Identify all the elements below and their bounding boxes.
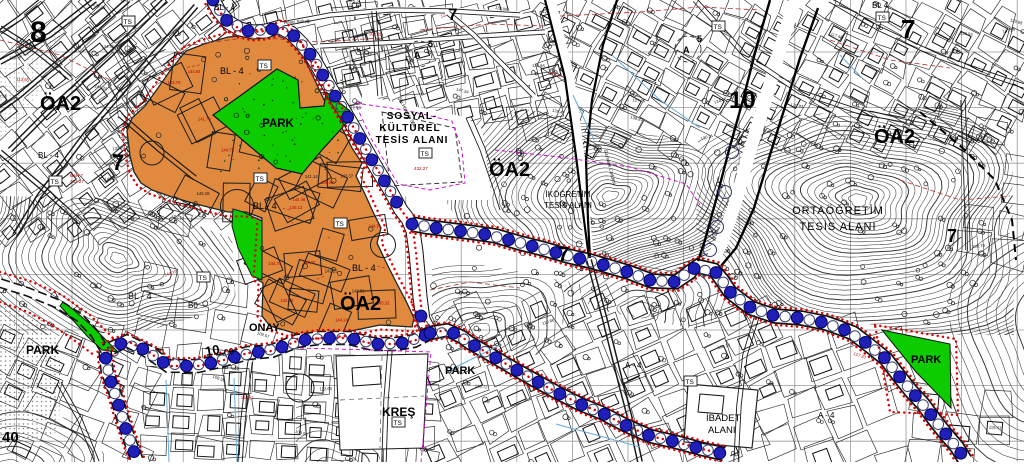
svg-text:144.51: 144.51 bbox=[368, 224, 381, 229]
svg-text:B0: B0 bbox=[188, 301, 198, 310]
svg-text:TS: TS bbox=[421, 151, 430, 158]
svg-text:ÖA2: ÖA2 bbox=[874, 125, 915, 148]
svg-text:TESİS ALANI: TESİS ALANI bbox=[376, 133, 449, 146]
svg-text:PARK: PARK bbox=[445, 365, 475, 377]
svg-text:8: 8 bbox=[30, 16, 47, 49]
svg-text:7: 7 bbox=[448, 5, 457, 24]
svg-text:TS: TS bbox=[878, 15, 887, 22]
svg-text:PARK: PARK bbox=[26, 343, 59, 357]
svg-text:A: A bbox=[683, 45, 690, 55]
svg-text:146.28: 146.28 bbox=[197, 191, 210, 196]
svg-text:10: 10 bbox=[204, 342, 221, 359]
svg-text:BL - 4: BL - 4 bbox=[38, 151, 60, 160]
svg-text:İBADET: İBADET bbox=[706, 413, 741, 424]
svg-text:432.27: 432.27 bbox=[70, 179, 84, 184]
svg-text:143.79: 143.79 bbox=[168, 80, 181, 85]
svg-text:TESİS ALANI: TESİS ALANI bbox=[544, 201, 592, 210]
svg-text:TS: TS bbox=[336, 221, 345, 228]
svg-text:BL - 4: BL - 4 bbox=[214, 3, 236, 12]
svg-text:KREŞ: KREŞ bbox=[382, 405, 415, 419]
svg-text:119.41: 119.41 bbox=[989, 425, 1002, 431]
svg-text:BAH 7: BAH 7 bbox=[70, 173, 84, 178]
svg-text:BL 4: BL 4 bbox=[872, 1, 889, 10]
svg-text:KÜLTÜREL: KÜLTÜREL bbox=[379, 121, 440, 134]
svg-text:10: 10 bbox=[729, 87, 756, 114]
svg-text:Q: Q bbox=[260, 246, 264, 252]
svg-text:108.83: 108.83 bbox=[369, 31, 383, 37]
svg-text:113.65: 113.65 bbox=[16, 77, 29, 83]
svg-text:BL - 4: BL - 4 bbox=[220, 66, 244, 76]
svg-text:TS: TS bbox=[394, 420, 403, 427]
svg-text:141.78: 141.78 bbox=[198, 117, 211, 122]
svg-text:144.24: 144.24 bbox=[335, 318, 348, 323]
svg-text:ONAY: ONAY bbox=[249, 322, 280, 334]
svg-text:TS: TS bbox=[124, 19, 133, 26]
svg-text:ÖA2: ÖA2 bbox=[40, 92, 81, 115]
svg-text:ÖA2: ÖA2 bbox=[489, 158, 530, 181]
svg-text:7: 7 bbox=[558, 244, 569, 266]
svg-text:BL - 4: BL - 4 bbox=[352, 263, 376, 273]
svg-text:144.46: 144.46 bbox=[293, 197, 306, 202]
svg-text:TS: TS bbox=[686, 379, 695, 386]
svg-text:133.96: 133.96 bbox=[532, 63, 546, 69]
svg-text:PARK: PARK bbox=[911, 354, 941, 366]
svg-text:7: 7 bbox=[947, 226, 957, 246]
svg-text:BL - 4: BL - 4 bbox=[128, 291, 152, 301]
svg-text:7: 7 bbox=[112, 150, 124, 175]
svg-text:ÖA2: ÖA2 bbox=[340, 292, 381, 315]
svg-text:TS: TS bbox=[256, 176, 265, 183]
svg-text:PARK: PARK bbox=[262, 118, 294, 130]
svg-text:TS: TS bbox=[260, 63, 269, 70]
svg-text:5: 5 bbox=[428, 39, 433, 49]
svg-text:40: 40 bbox=[2, 429, 19, 446]
svg-text:ORTAÖĞRETİM: ORTAÖĞRETİM bbox=[792, 204, 884, 217]
svg-text:112.65: 112.65 bbox=[319, 386, 332, 391]
svg-text:432.27: 432.27 bbox=[414, 166, 428, 171]
svg-text:146.58: 146.58 bbox=[321, 180, 334, 185]
svg-text:5: 5 bbox=[697, 34, 702, 44]
svg-text:140.13: 140.13 bbox=[289, 205, 302, 210]
svg-text:A - 4: A - 4 bbox=[818, 411, 835, 420]
svg-text:128.72: 128.72 bbox=[475, 384, 489, 390]
svg-text:A: A bbox=[414, 50, 421, 60]
svg-text:İKÖĞRETİM: İKÖĞRETİM bbox=[546, 190, 591, 199]
svg-text:144.74: 144.74 bbox=[268, 261, 281, 266]
svg-text:146.77: 146.77 bbox=[303, 260, 316, 265]
svg-text:TS: TS bbox=[714, 24, 723, 31]
svg-text:141.25: 141.25 bbox=[325, 269, 338, 274]
svg-text:.00: .00 bbox=[221, 346, 235, 358]
svg-text:A - 4: A - 4 bbox=[625, 361, 642, 370]
svg-text:7: 7 bbox=[901, 14, 915, 44]
svg-text:127.20: 127.20 bbox=[632, 98, 646, 104]
svg-text:144.64: 144.64 bbox=[188, 69, 201, 74]
svg-text:TESİS ALANI: TESİS ALANI bbox=[799, 220, 876, 233]
svg-text:144.75: 144.75 bbox=[221, 147, 234, 152]
svg-text:ALANI: ALANI bbox=[708, 425, 735, 436]
svg-text:141.14: 141.14 bbox=[305, 174, 318, 179]
svg-text:TS: TS bbox=[51, 179, 60, 186]
svg-text:TS: TS bbox=[199, 275, 208, 282]
svg-text:BL - 4: BL - 4 bbox=[253, 201, 277, 211]
